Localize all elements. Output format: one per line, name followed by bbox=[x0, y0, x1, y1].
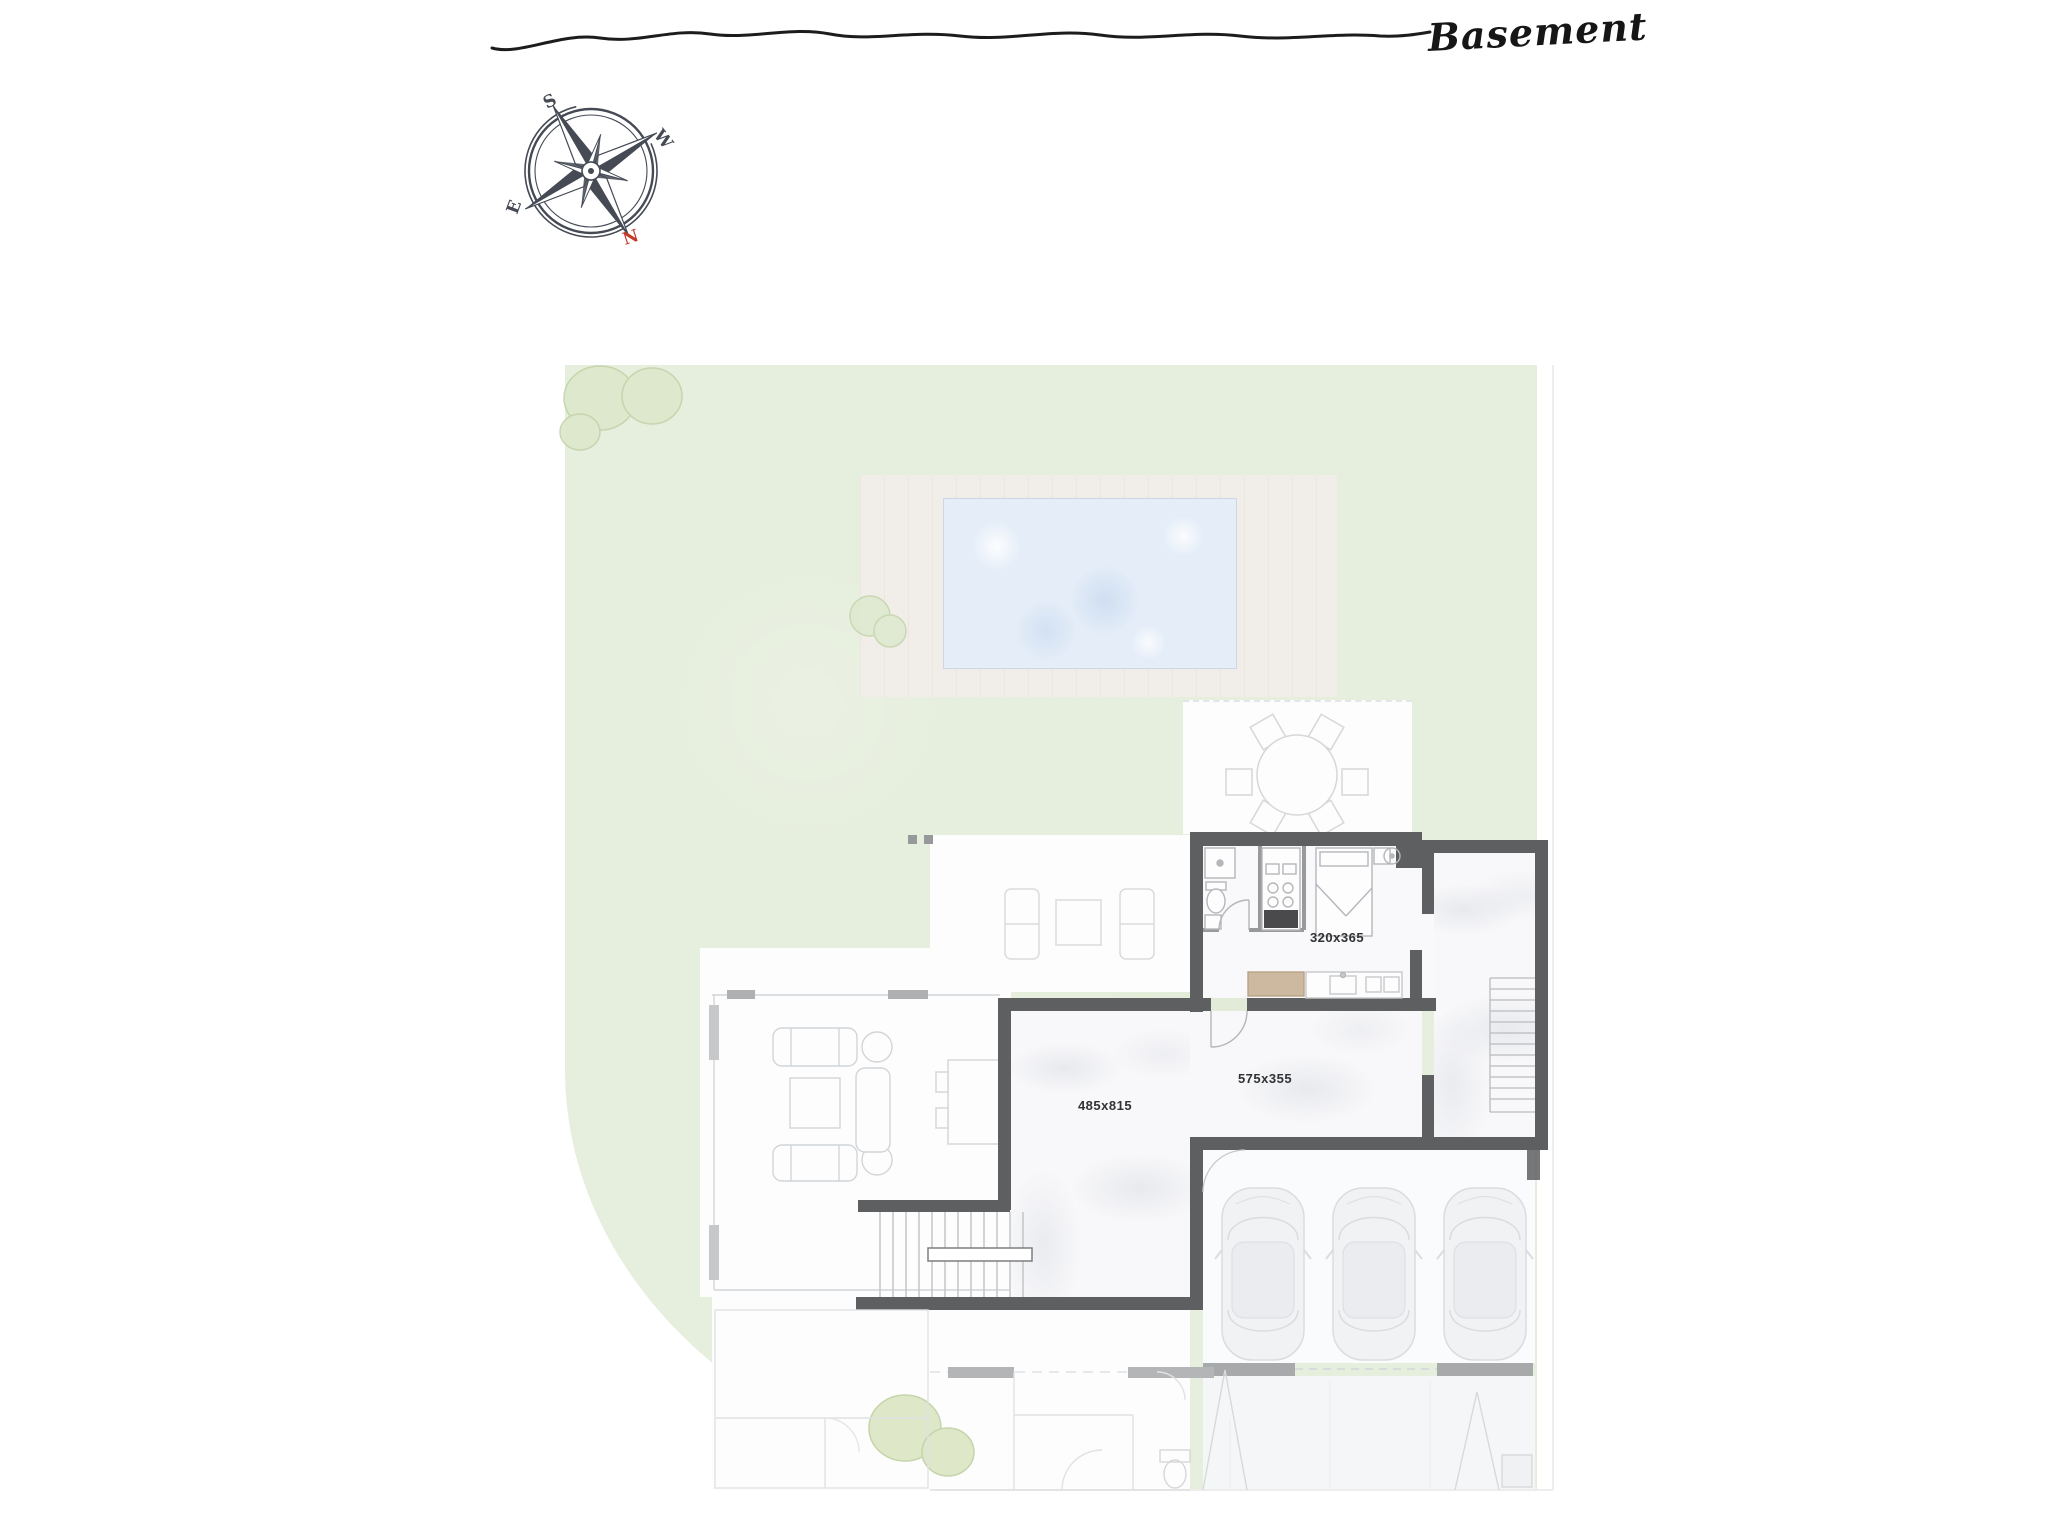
compass-south-label: S bbox=[540, 90, 560, 113]
compass-east-label: E bbox=[505, 198, 526, 217]
living-room-faded bbox=[700, 948, 1011, 1297]
lower-rooms-left-faded bbox=[712, 1297, 935, 1490]
storage-room-floor bbox=[1434, 853, 1535, 1137]
swimming-pool bbox=[943, 498, 1237, 669]
compass-north-label: N bbox=[620, 226, 641, 250]
garage-floor bbox=[1203, 1150, 1535, 1363]
pool-deck bbox=[860, 475, 1337, 697]
lower-rooms-center-faded bbox=[930, 1310, 1190, 1490]
compass-icon: S W N E bbox=[505, 85, 677, 257]
outdoor-dining-terrace bbox=[1183, 700, 1412, 834]
dim-label-main-hall: 575x355 bbox=[1220, 1071, 1310, 1086]
bedroom-suite-floor bbox=[1203, 846, 1436, 998]
dim-label-lower-hall: 485x815 bbox=[1060, 1098, 1150, 1113]
lower-hall-floor bbox=[1011, 1011, 1190, 1297]
driveway bbox=[1203, 1376, 1535, 1490]
header-squiggle-line bbox=[490, 18, 1435, 66]
basement-floor-plan: Basement bbox=[0, 0, 2048, 1536]
compass-star bbox=[505, 85, 677, 257]
page-title: Basement bbox=[1427, 5, 1620, 75]
dim-label-bedroom-suite: 320x365 bbox=[1292, 930, 1382, 945]
